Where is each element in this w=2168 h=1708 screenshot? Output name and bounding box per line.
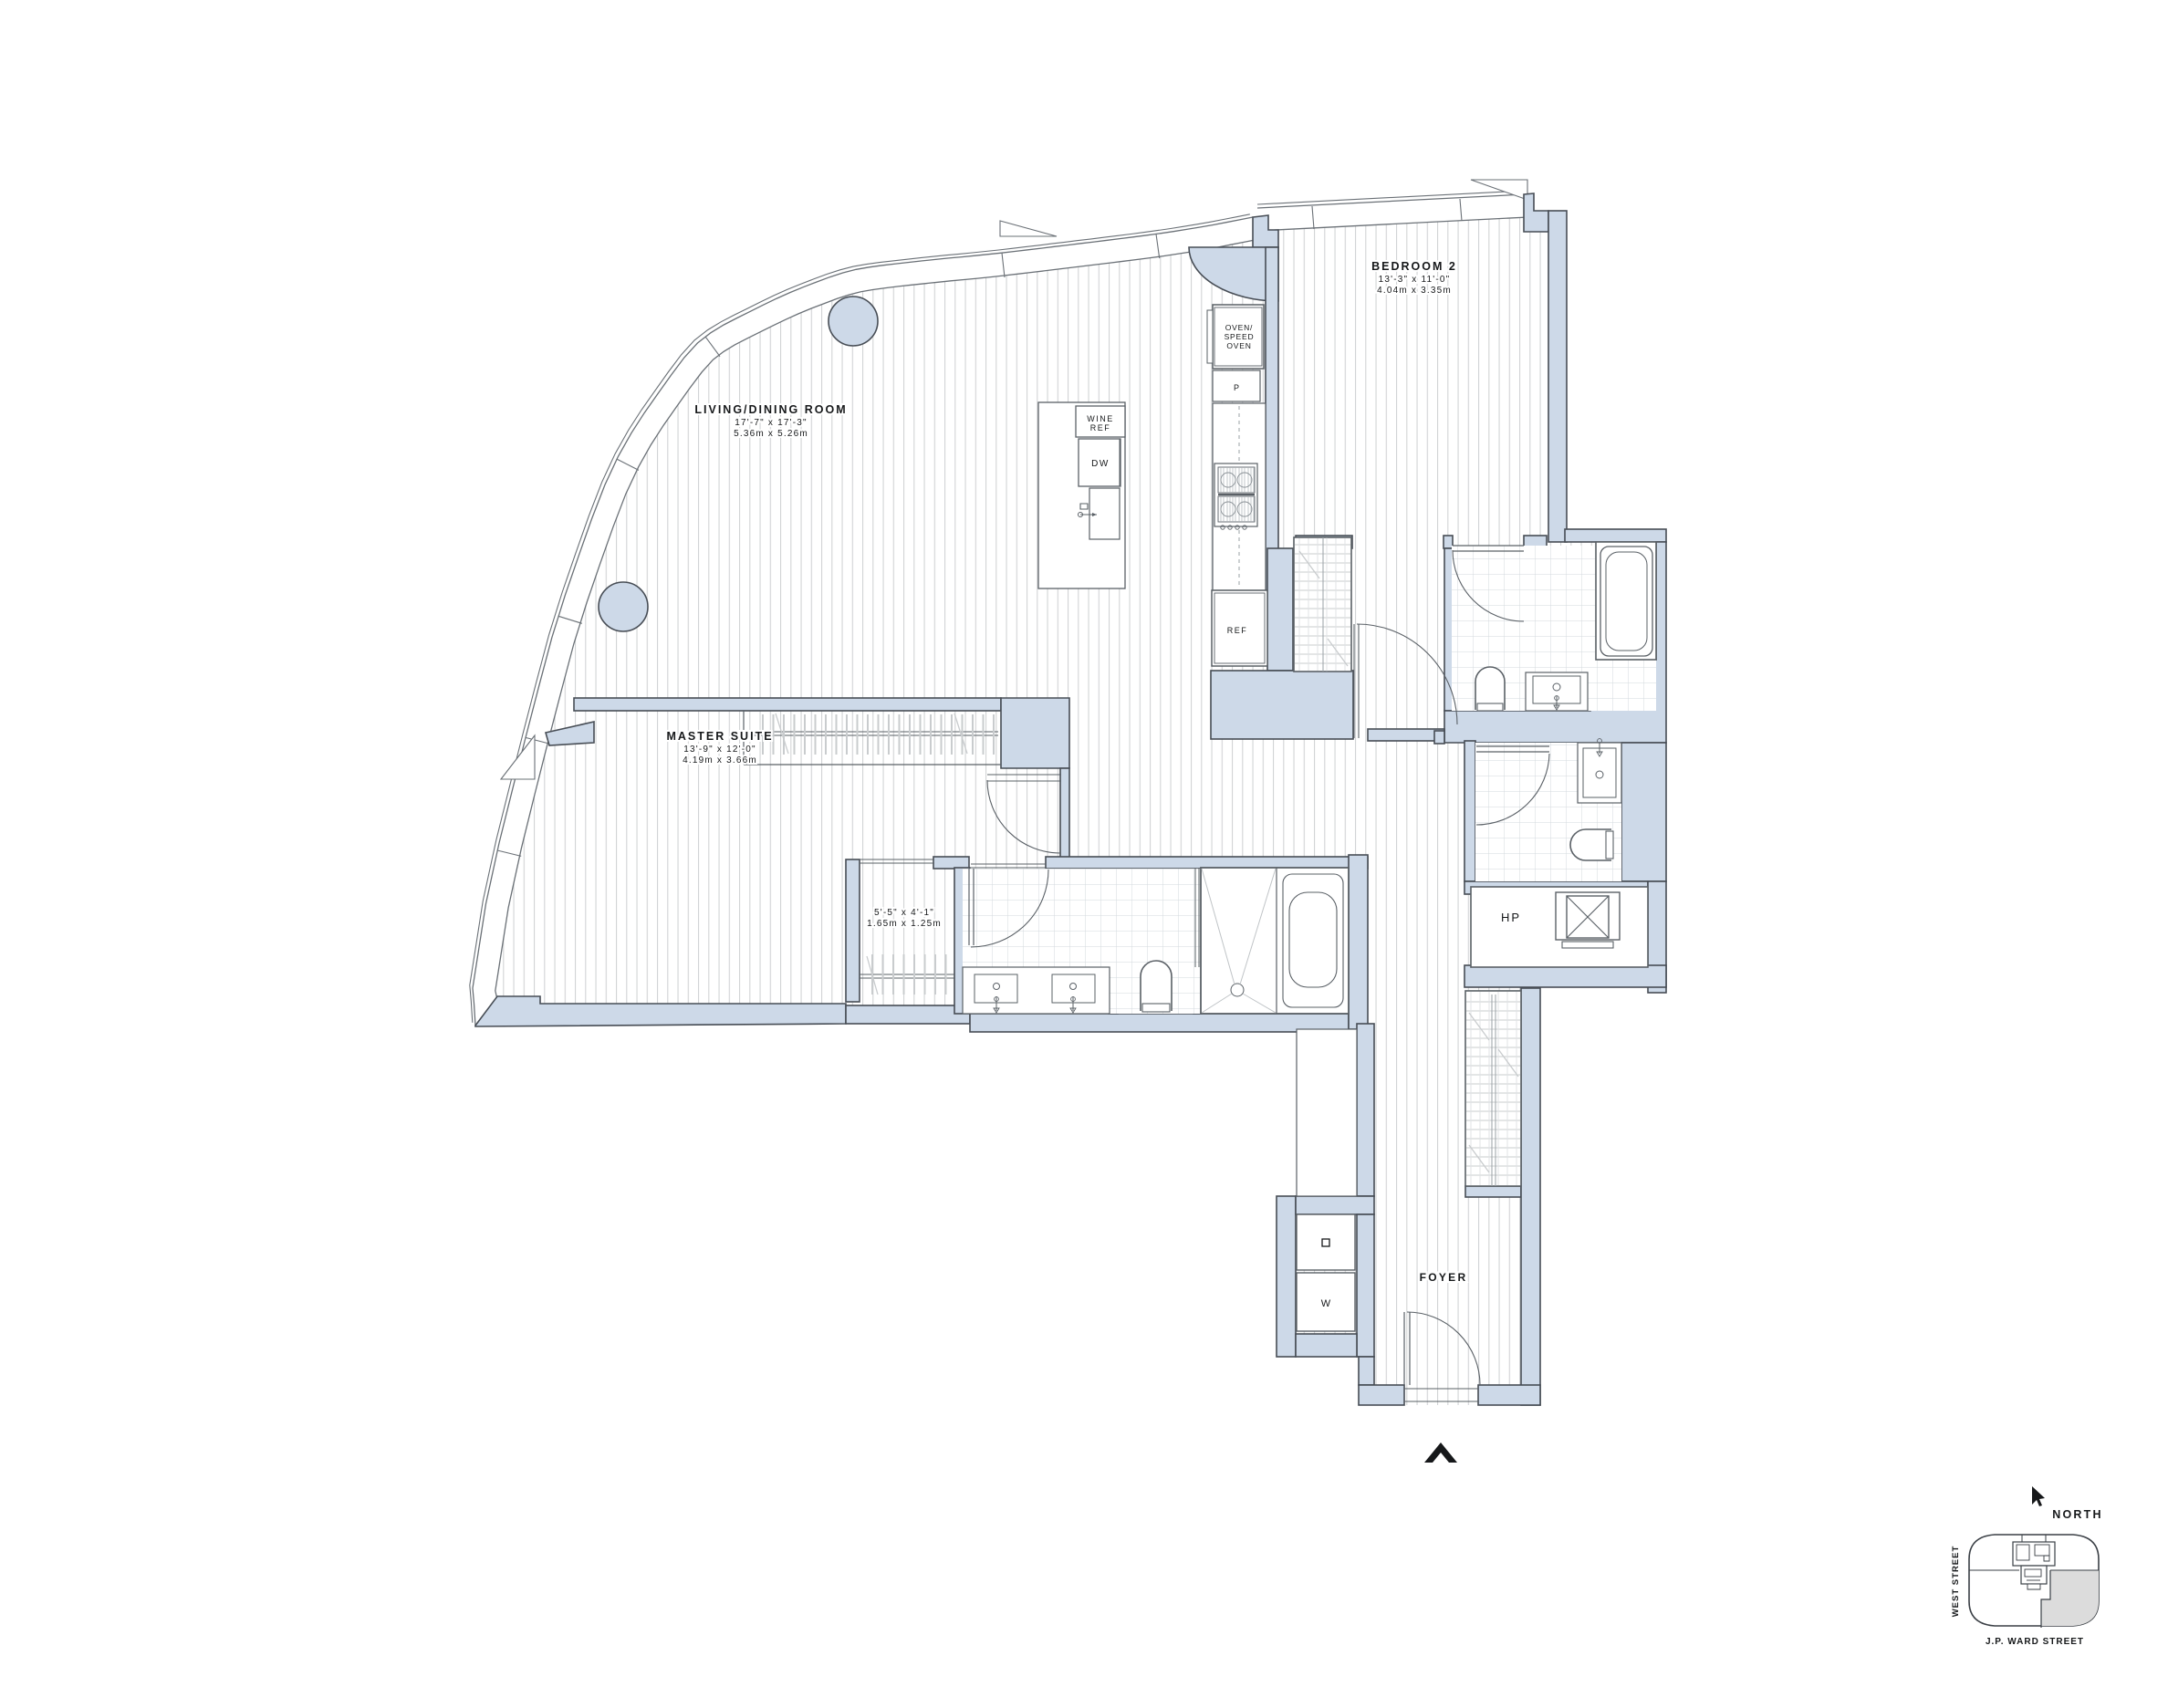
svg-text:MASTER SUITE: MASTER SUITE xyxy=(666,730,773,743)
svg-text:1.65m x 1.25m: 1.65m x 1.25m xyxy=(867,919,942,929)
svg-text:13'-9" x 12'-0": 13'-9" x 12'-0" xyxy=(683,745,756,755)
svg-text:17'-7" x 17'-3": 17'-7" x 17'-3" xyxy=(735,418,808,428)
svg-text:OVEN/: OVEN/ xyxy=(1225,323,1253,332)
svg-text:WINE: WINE xyxy=(1087,414,1114,423)
svg-text:P: P xyxy=(1234,383,1239,392)
svg-text:13'-3" x 11'-0": 13'-3" x 11'-0" xyxy=(1379,275,1451,285)
svg-text:HP: HP xyxy=(1501,911,1521,924)
svg-text:5.36m x 5.26m: 5.36m x 5.26m xyxy=(734,429,808,439)
svg-text:5'-5" x 4'-1": 5'-5" x 4'-1" xyxy=(874,908,934,918)
svg-text:J.P. WARD STREET: J.P. WARD STREET xyxy=(1986,1637,2084,1647)
svg-text:DW: DW xyxy=(1091,459,1110,469)
svg-text:NORTH: NORTH xyxy=(2052,1508,2102,1521)
svg-text:SPEED: SPEED xyxy=(1225,332,1255,341)
svg-text:4.19m x 3.66m: 4.19m x 3.66m xyxy=(683,755,757,765)
svg-text:REF: REF xyxy=(1227,626,1248,635)
svg-text:FOYER: FOYER xyxy=(1420,1271,1468,1284)
svg-text:REF: REF xyxy=(1090,423,1111,432)
svg-text:W: W xyxy=(1321,1298,1331,1309)
svg-text:4.04m x 3.35m: 4.04m x 3.35m xyxy=(1377,286,1452,296)
svg-text:BEDROOM 2: BEDROOM 2 xyxy=(1371,260,1457,273)
svg-text:OVEN: OVEN xyxy=(1226,341,1251,350)
svg-text:LIVING/DINING ROOM: LIVING/DINING ROOM xyxy=(694,403,847,416)
svg-text:WEST STREET: WEST STREET xyxy=(1951,1546,1961,1618)
